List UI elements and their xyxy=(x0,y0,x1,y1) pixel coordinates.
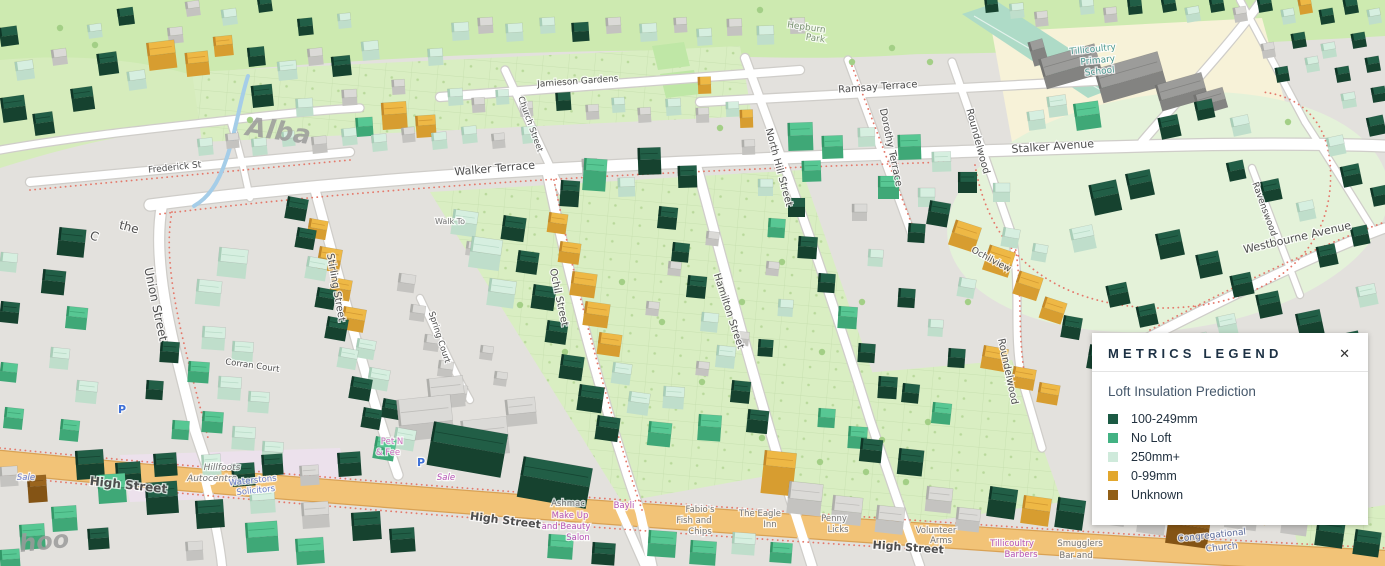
legend-body: Loft Insulation Prediction 100-249mm No … xyxy=(1092,372,1368,525)
poi-label: Walk To xyxy=(435,217,465,226)
poi-label: & Fee xyxy=(376,448,400,458)
building[interactable] xyxy=(596,332,622,357)
poi-label: Barbers xyxy=(1004,550,1038,560)
legend-title: METRICS LEGEND xyxy=(1108,346,1283,361)
building[interactable] xyxy=(559,180,580,207)
building[interactable] xyxy=(645,301,659,316)
building[interactable] xyxy=(984,0,998,13)
poi-label: Smugglers xyxy=(1057,539,1103,549)
building[interactable] xyxy=(858,127,876,147)
building[interactable] xyxy=(1351,32,1367,49)
building[interactable] xyxy=(0,301,20,324)
building[interactable] xyxy=(901,383,920,404)
building[interactable] xyxy=(337,451,362,477)
building[interactable] xyxy=(817,273,835,293)
building[interactable] xyxy=(678,165,698,188)
building[interactable] xyxy=(1103,7,1117,23)
building[interactable] xyxy=(925,486,953,514)
building[interactable] xyxy=(1343,0,1359,15)
building[interactable] xyxy=(96,51,119,76)
building[interactable] xyxy=(217,247,249,279)
building[interactable] xyxy=(1127,0,1142,15)
building[interactable] xyxy=(447,88,463,106)
building[interactable] xyxy=(637,147,661,175)
building[interactable] xyxy=(1195,251,1222,279)
building[interactable] xyxy=(145,380,163,400)
building[interactable] xyxy=(582,301,610,328)
building[interactable] xyxy=(477,17,493,34)
building[interactable] xyxy=(491,133,505,149)
building[interactable] xyxy=(689,540,717,566)
building[interactable] xyxy=(927,319,943,337)
building[interactable] xyxy=(127,70,147,91)
building[interactable] xyxy=(1371,86,1385,103)
building[interactable] xyxy=(65,306,88,330)
building[interactable] xyxy=(822,135,844,159)
building[interactable] xyxy=(1230,272,1255,298)
poi-label: and Beauty xyxy=(542,522,591,532)
building[interactable] xyxy=(401,127,415,143)
building[interactable] xyxy=(958,172,977,193)
building[interactable] xyxy=(409,304,426,322)
building[interactable] xyxy=(397,273,416,293)
building[interactable] xyxy=(299,465,319,486)
building[interactable] xyxy=(582,158,607,192)
building[interactable] xyxy=(1233,6,1248,23)
building[interactable] xyxy=(662,386,684,409)
building[interactable] xyxy=(500,215,526,242)
building[interactable] xyxy=(461,125,478,143)
building[interactable] xyxy=(195,279,222,306)
building[interactable] xyxy=(427,48,443,66)
building[interactable] xyxy=(758,179,773,196)
building[interactable] xyxy=(618,177,636,197)
building[interactable] xyxy=(217,376,242,401)
building[interactable] xyxy=(1305,56,1320,73)
building[interactable] xyxy=(700,312,719,333)
building[interactable] xyxy=(341,89,357,106)
building[interactable] xyxy=(516,250,540,275)
building[interactable] xyxy=(837,306,857,329)
building[interactable] xyxy=(57,227,87,258)
building[interactable] xyxy=(932,151,952,172)
building[interactable] xyxy=(348,376,373,401)
poi-label: Penny xyxy=(821,514,847,524)
building[interactable] xyxy=(301,501,330,529)
building[interactable] xyxy=(696,28,712,46)
building[interactable] xyxy=(0,362,18,383)
building[interactable] xyxy=(0,549,21,566)
building[interactable] xyxy=(539,17,555,34)
building[interactable] xyxy=(1335,66,1351,83)
legend-close-button[interactable]: ✕ xyxy=(1337,347,1352,360)
building[interactable] xyxy=(726,102,740,117)
building[interactable] xyxy=(331,55,352,77)
building[interactable] xyxy=(742,140,756,155)
building[interactable] xyxy=(673,17,687,33)
building[interactable] xyxy=(571,22,589,42)
building[interactable] xyxy=(471,97,485,113)
legend-item: 0-99mm xyxy=(1108,469,1352,483)
building[interactable] xyxy=(1291,32,1307,49)
building[interactable] xyxy=(1365,56,1381,73)
building[interactable] xyxy=(146,40,177,71)
building[interactable] xyxy=(297,17,314,35)
building[interactable] xyxy=(657,206,678,230)
building[interactable] xyxy=(757,339,773,357)
building[interactable] xyxy=(777,299,793,317)
building[interactable] xyxy=(786,481,823,516)
building[interactable] xyxy=(0,95,27,123)
building[interactable] xyxy=(627,391,651,416)
building[interactable] xyxy=(391,79,405,95)
building[interactable] xyxy=(730,380,751,404)
building[interactable] xyxy=(201,411,223,433)
building[interactable] xyxy=(87,23,103,39)
building[interactable] xyxy=(787,122,813,151)
building[interactable] xyxy=(1034,11,1048,27)
building[interactable] xyxy=(1079,0,1094,15)
building[interactable] xyxy=(686,275,707,299)
building[interactable] xyxy=(611,97,625,113)
building[interactable] xyxy=(1054,497,1086,531)
building[interactable] xyxy=(261,454,283,476)
legend-item-label: 0-99mm xyxy=(1131,469,1177,483)
building[interactable] xyxy=(251,84,274,108)
building[interactable] xyxy=(185,51,210,77)
building[interactable] xyxy=(947,348,965,368)
building[interactable] xyxy=(757,25,775,45)
building[interactable] xyxy=(70,86,95,112)
poi-label: Sale xyxy=(437,473,455,483)
color-swatch xyxy=(1108,433,1118,443)
building[interactable] xyxy=(49,347,70,370)
building[interactable] xyxy=(955,507,981,532)
building[interactable] xyxy=(284,196,309,221)
building[interactable] xyxy=(1281,8,1296,25)
building[interactable] xyxy=(171,420,189,440)
building[interactable] xyxy=(351,511,382,541)
building[interactable] xyxy=(337,13,351,29)
building[interactable] xyxy=(1275,66,1290,83)
building[interactable] xyxy=(75,380,98,404)
poi-label: Tillicoultry xyxy=(989,539,1034,549)
building[interactable] xyxy=(1069,225,1096,253)
building[interactable] xyxy=(505,23,523,42)
building[interactable] xyxy=(1185,6,1201,23)
building[interactable] xyxy=(993,183,1010,202)
building[interactable] xyxy=(931,402,952,425)
poi-label: Make Up xyxy=(552,511,589,521)
building[interactable] xyxy=(1352,529,1381,557)
building[interactable] xyxy=(295,537,325,565)
building[interactable] xyxy=(197,137,214,155)
building[interactable] xyxy=(877,376,897,399)
building[interactable] xyxy=(637,107,651,123)
color-swatch xyxy=(1108,490,1118,500)
building[interactable] xyxy=(907,223,925,243)
building[interactable] xyxy=(698,77,712,94)
building[interactable] xyxy=(802,160,822,182)
building[interactable] xyxy=(852,204,867,221)
building[interactable] xyxy=(117,7,135,26)
building[interactable] xyxy=(767,218,785,238)
building[interactable] xyxy=(926,200,951,227)
building[interactable] xyxy=(355,117,373,137)
building[interactable] xyxy=(859,438,883,463)
building[interactable] xyxy=(897,288,915,308)
building[interactable] xyxy=(765,261,779,276)
building[interactable] xyxy=(671,242,690,263)
building[interactable] xyxy=(898,134,922,160)
poi-label: The Eagle xyxy=(738,509,781,519)
building[interactable] xyxy=(247,391,269,413)
building[interactable] xyxy=(576,384,604,413)
legend-header: METRICS LEGEND ✕ xyxy=(1092,333,1368,372)
building[interactable] xyxy=(897,448,925,476)
building[interactable] xyxy=(857,343,875,363)
building[interactable] xyxy=(87,528,109,550)
building[interactable] xyxy=(1073,101,1102,131)
building[interactable] xyxy=(295,98,313,117)
poi-label: Ashmac xyxy=(551,499,585,509)
building[interactable] xyxy=(1155,229,1185,260)
building[interactable] xyxy=(468,236,503,271)
app-stage: Walker TerraceStalker AvenueWestbourne A… xyxy=(0,0,1385,566)
building[interactable] xyxy=(389,527,416,553)
building[interactable] xyxy=(0,26,19,47)
building[interactable] xyxy=(201,326,226,351)
parking-icon: P xyxy=(417,456,425,469)
building[interactable] xyxy=(311,135,328,153)
building[interactable] xyxy=(41,269,66,295)
building[interactable] xyxy=(0,466,19,487)
building[interactable] xyxy=(1261,42,1276,59)
color-swatch xyxy=(1108,452,1118,462)
building[interactable] xyxy=(547,212,569,234)
building[interactable] xyxy=(740,110,754,128)
building[interactable] xyxy=(431,131,448,149)
building[interactable] xyxy=(1060,315,1083,340)
building[interactable] xyxy=(3,407,24,430)
building[interactable] xyxy=(361,40,380,61)
poi-label: Chips xyxy=(688,527,712,537)
building[interactable] xyxy=(986,486,1018,520)
poi-label: Bar and xyxy=(1059,551,1092,561)
building[interactable] xyxy=(746,409,769,434)
building[interactable] xyxy=(257,0,273,13)
building[interactable] xyxy=(731,532,755,556)
building[interactable] xyxy=(665,98,681,116)
building[interactable] xyxy=(245,521,279,553)
legend-subtitle: Loft Insulation Prediction xyxy=(1108,384,1352,399)
building[interactable] xyxy=(15,60,35,81)
building[interactable] xyxy=(647,530,677,558)
poi-label: Pet N xyxy=(381,437,403,447)
poi-label: Hillfoots xyxy=(204,463,241,473)
building[interactable] xyxy=(493,371,508,387)
building[interactable] xyxy=(371,133,388,151)
poi-label: Inn xyxy=(763,520,776,530)
building[interactable] xyxy=(479,345,494,361)
building[interactable] xyxy=(451,22,469,41)
building[interactable] xyxy=(769,542,792,563)
building[interactable] xyxy=(153,452,178,477)
building[interactable] xyxy=(1125,169,1155,200)
building[interactable] xyxy=(51,48,68,66)
building[interactable] xyxy=(381,101,408,130)
building[interactable] xyxy=(185,0,201,17)
building[interactable] xyxy=(1321,42,1337,59)
building[interactable] xyxy=(187,361,209,383)
building[interactable] xyxy=(594,415,620,442)
building[interactable] xyxy=(558,354,584,381)
building[interactable] xyxy=(247,46,266,67)
building[interactable] xyxy=(1341,92,1357,109)
building[interactable] xyxy=(667,261,681,276)
building[interactable] xyxy=(213,35,234,57)
legend-item: Unknown xyxy=(1108,488,1352,502)
building[interactable] xyxy=(195,499,225,529)
legend-item-label: No Loft xyxy=(1131,431,1171,445)
building[interactable] xyxy=(585,104,599,120)
building[interactable] xyxy=(32,111,55,136)
building[interactable] xyxy=(875,505,906,535)
building[interactable] xyxy=(591,542,615,566)
building[interactable] xyxy=(185,541,203,561)
building[interactable] xyxy=(159,341,179,363)
building[interactable] xyxy=(647,421,672,447)
color-swatch xyxy=(1108,471,1118,481)
legend-item: 250mm+ xyxy=(1108,450,1352,464)
legend-item: No Loft xyxy=(1108,431,1352,445)
building[interactable] xyxy=(555,92,571,111)
building[interactable] xyxy=(817,408,835,428)
poi-label: Salon xyxy=(566,533,590,543)
building[interactable] xyxy=(715,345,736,369)
building[interactable] xyxy=(705,231,719,246)
building[interactable] xyxy=(1255,291,1282,319)
building[interactable] xyxy=(1031,243,1049,262)
place-label: hoo xyxy=(18,525,71,558)
building[interactable] xyxy=(639,23,657,42)
color-swatch xyxy=(1108,414,1118,424)
poi-label: Volunteer xyxy=(916,526,957,536)
legend-item-label: 250mm+ xyxy=(1131,450,1180,464)
poi-label: Fabio's xyxy=(685,505,715,515)
building[interactable] xyxy=(505,397,538,427)
building[interactable] xyxy=(360,407,382,430)
poi-label: Arms xyxy=(930,536,952,546)
building[interactable] xyxy=(1367,8,1382,25)
poi-label: Licks xyxy=(827,525,849,535)
building[interactable] xyxy=(294,227,316,250)
building[interactable] xyxy=(1106,282,1131,308)
metrics-legend-panel: METRICS LEGEND ✕ Loft Insulation Predict… xyxy=(1092,333,1368,525)
building[interactable] xyxy=(1027,110,1046,131)
building[interactable] xyxy=(1009,3,1024,19)
building[interactable] xyxy=(558,241,582,265)
building[interactable] xyxy=(221,8,238,26)
building[interactable] xyxy=(307,47,324,65)
poi-label: Bayli xyxy=(614,501,635,511)
building[interactable] xyxy=(341,127,358,145)
building[interactable] xyxy=(727,18,743,36)
building[interactable] xyxy=(695,361,709,376)
building[interactable] xyxy=(697,414,722,442)
building[interactable] xyxy=(569,271,597,298)
poi-label: Fish and xyxy=(676,516,711,526)
building[interactable] xyxy=(1319,8,1335,25)
building[interactable] xyxy=(696,108,710,123)
building[interactable] xyxy=(336,347,358,370)
poi-label: Sale xyxy=(17,473,35,483)
building[interactable] xyxy=(797,236,817,259)
building[interactable] xyxy=(59,419,80,442)
building[interactable] xyxy=(231,426,256,451)
building[interactable] xyxy=(0,252,18,273)
legend-item-label: 100-249mm xyxy=(1131,412,1198,426)
building[interactable] xyxy=(605,17,621,34)
building[interactable] xyxy=(611,362,633,385)
building[interactable] xyxy=(1020,495,1052,527)
building[interactable] xyxy=(867,249,883,267)
building[interactable] xyxy=(956,277,976,299)
parking-icon: P xyxy=(118,403,126,416)
building[interactable] xyxy=(1036,382,1060,405)
legend-items: 100-249mm No Loft 250mm+ 0-99mm Unknown xyxy=(1108,412,1352,502)
building[interactable] xyxy=(1046,94,1068,117)
legend-item-label: Unknown xyxy=(1131,488,1183,502)
building[interactable] xyxy=(495,89,509,105)
building[interactable] xyxy=(225,133,239,149)
building[interactable] xyxy=(1000,227,1020,249)
legend-item: 100-249mm xyxy=(1108,412,1352,426)
building[interactable] xyxy=(277,60,298,81)
building[interactable] xyxy=(486,278,516,308)
